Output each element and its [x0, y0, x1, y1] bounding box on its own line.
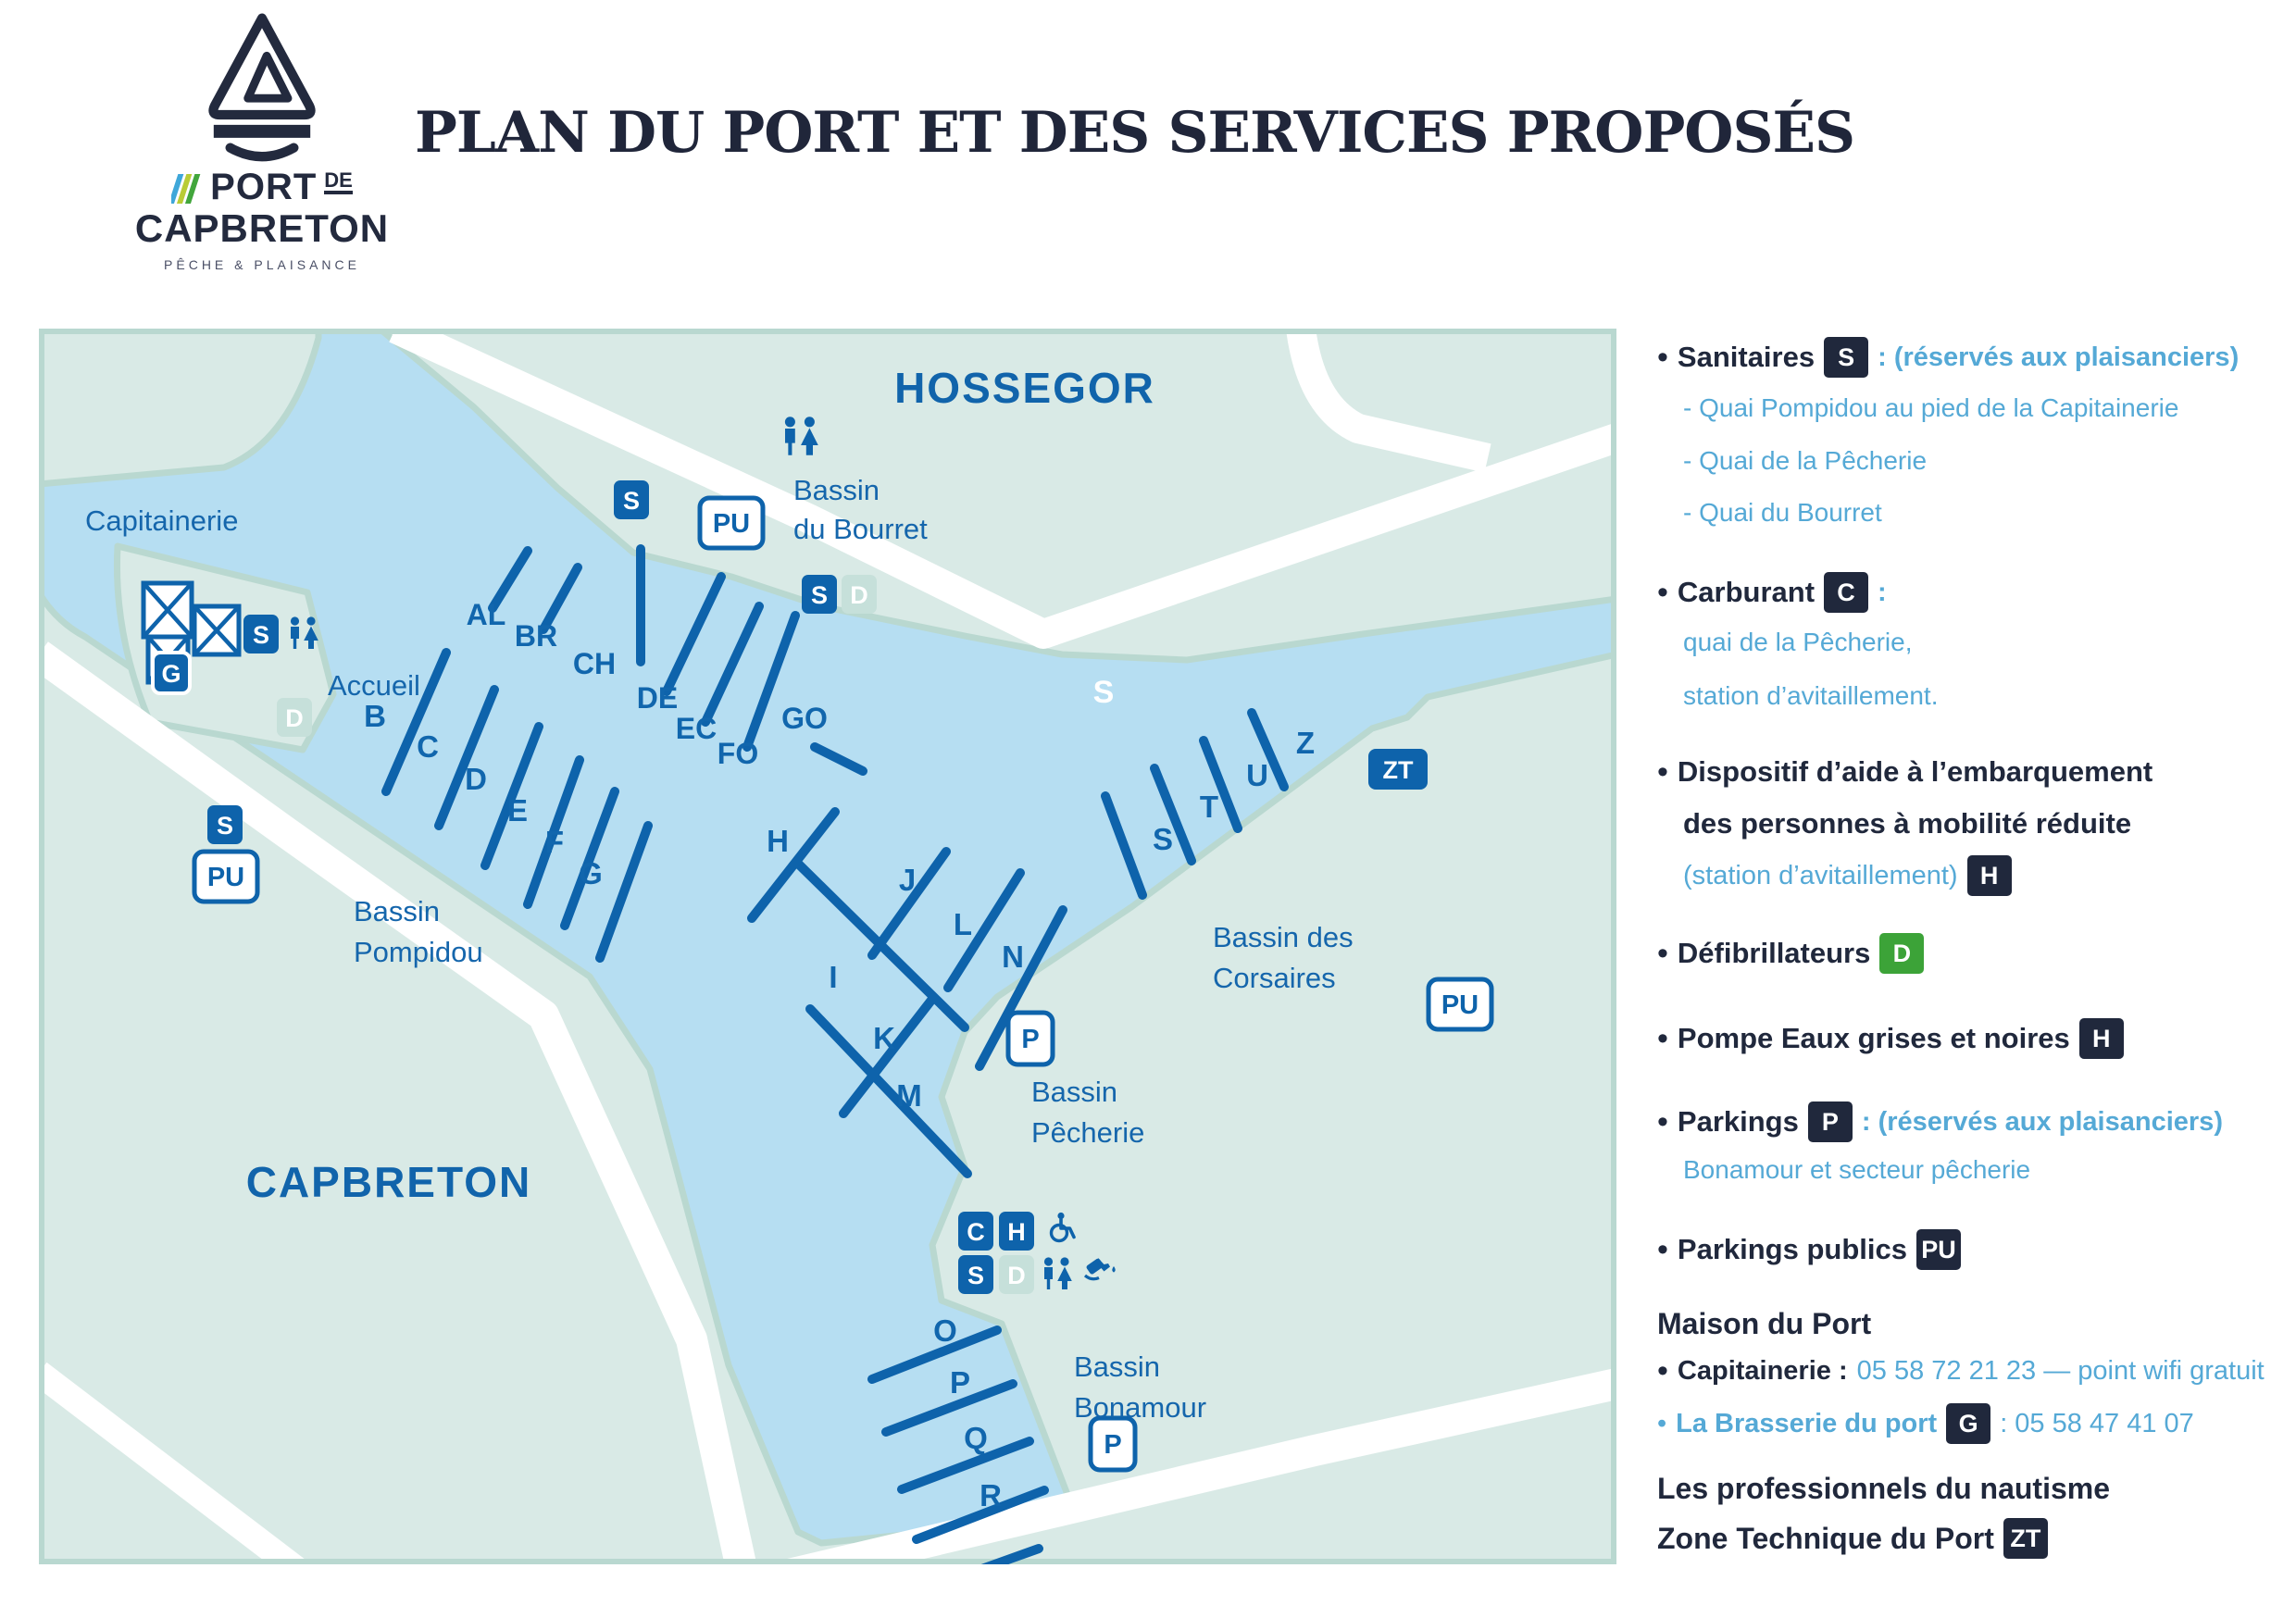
badge-s: S [1824, 337, 1868, 378]
brand-stripes-icon [171, 172, 203, 205]
legend-defib-label: Défibrillateurs [1678, 937, 1870, 970]
area-label-pompidou-2: Pompidou [354, 936, 483, 968]
pontoon-label-f: F [545, 825, 564, 859]
legend-carburant-suffix: : [1878, 578, 1887, 608]
badge-s-capitainerie: S [243, 615, 279, 653]
bullet: • [1657, 1023, 1668, 1054]
brasserie-label: La Brasserie du port [1676, 1409, 1937, 1439]
badge-d-pecherie: D [999, 1255, 1034, 1294]
bullet: • [1657, 938, 1668, 969]
legend-pmr-text-1: Dispositif d’aide à l’embarquement [1678, 755, 2152, 789]
area-label-bonamour-2: Bonamour [1074, 1391, 1206, 1424]
badge-g-brasserie: G [153, 653, 190, 693]
area-label-accueil: Accueil [328, 669, 420, 702]
legend-sanitaires-sub-1: - Quai Pompidou au pied de la Capitainer… [1683, 393, 2178, 423]
badge-s-bourret-top: S [614, 480, 649, 519]
map-canvas: S PU S D S G D S [39, 329, 1616, 1564]
maison-du-port-title: Maison du Port [1657, 1307, 1871, 1341]
port-map: S PU S D S G D S [39, 329, 1616, 1564]
poster-page: PORT DE CAPBRETON PÊCHE & PLAISANCE PLAN… [0, 0, 2296, 1618]
legend-sanitaires-suffix: : (réservés aux plaisanciers) [1878, 342, 2239, 373]
pontoon-label-i: I [829, 960, 837, 994]
badge-letter: P [1021, 1025, 1039, 1054]
badge-letter: D [1007, 1262, 1026, 1289]
badge-letter: D [285, 704, 304, 732]
legend-professionnels: Les professionnels du nautisme [1657, 1472, 2110, 1506]
badge-letter: PU [207, 863, 244, 892]
pontoon-label-q: Q [964, 1421, 988, 1455]
pontoon-label-p: P [950, 1365, 970, 1400]
badge-d-bourret-quay: D [842, 575, 877, 614]
pontoon-label-s: S [1153, 822, 1173, 856]
pontoon-label-h: H [767, 824, 789, 858]
badge-zt-zone-technique: ZT [1368, 749, 1428, 790]
bullet: • [1657, 1411, 1666, 1438]
drop-sail-icon [183, 11, 341, 167]
legend-parkings-label: Parkings [1678, 1105, 1799, 1139]
page-title: PLAN DU PORT ET DES SERVICES PROPOSÉS [415, 100, 1989, 166]
capitainerie-contact-label: Capitainerie : [1678, 1356, 1848, 1387]
city-label-capbreton: CAPBRETON [246, 1158, 532, 1206]
bullet: • [1657, 342, 1668, 373]
badge-letter: S [967, 1262, 984, 1289]
city-label-hossegor: HOSSEGOR [894, 364, 1155, 412]
legend-parkings-sub: Bonamour et secteur pêcherie [1683, 1155, 2030, 1185]
legend-pmr-line-3: (station d’avitaillement) H [1683, 855, 2021, 896]
badge-letter: PU [713, 509, 750, 539]
legend-sanitaires-sub-3: - Quai du Bourret [1683, 498, 1882, 528]
area-label-pecherie-2: Pêcherie [1031, 1116, 1144, 1149]
badge-h-pecherie: H [999, 1212, 1034, 1251]
bullet: • [1657, 577, 1668, 608]
legend-parkings-suffix: : (réservés aux plaisanciers) [1862, 1107, 2223, 1138]
pontoon-label-o: O [933, 1313, 957, 1348]
pontoon-label-ec: EC [676, 712, 717, 745]
pontoon-label-go: GO [781, 702, 828, 735]
area-label-bonamour-1: Bassin [1074, 1350, 1160, 1383]
badge-pu-pompidou: PU [194, 852, 257, 902]
pontoon-label-n: N [1002, 940, 1024, 974]
pontoon-label-m: M [896, 1078, 922, 1113]
pontoon-label-l: L [954, 907, 972, 941]
bullet: • [1657, 1106, 1668, 1138]
legend-capitainerie-contact: • Capitainerie : 05 58 72 21 23 — point … [1657, 1355, 2265, 1387]
pontoon-label-de: DE [637, 681, 678, 715]
legend-defibrillateurs: • Défibrillateurs D [1657, 933, 1933, 974]
badge-p-bonamour: P [1091, 1418, 1135, 1470]
pontoon-label-ch: CH [573, 647, 616, 680]
badge-pu-bourret: PU [700, 498, 763, 548]
pontoon-label-g: G [579, 856, 603, 890]
badge-letter: P [1104, 1430, 1121, 1460]
bullet: • [1657, 756, 1668, 788]
badge-letter: C [967, 1218, 985, 1246]
pontoon-label-r: R [980, 1478, 1002, 1512]
legend-pmr-text-2: des personnes à mobilité réduite [1683, 807, 2131, 840]
pontoon-label-fo: FO [717, 737, 758, 770]
pontoon-label-b: B [364, 699, 386, 733]
badge-s-bourret-quay: S [802, 575, 837, 614]
zone-technique-label: Zone Technique du Port [1657, 1522, 1994, 1556]
badge-letter: S [811, 581, 828, 609]
brand-port: PORT [210, 168, 317, 205]
area-label-pecherie-1: Bassin [1031, 1076, 1117, 1108]
bullet: • [1657, 1355, 1668, 1387]
badge-letter: S [623, 487, 640, 515]
badge-letter: H [1007, 1218, 1026, 1246]
badge-h: H [1967, 855, 2012, 896]
legend-carburant-label: Carburant [1678, 576, 1815, 609]
badge-h: H [2079, 1018, 2124, 1059]
legend-pmr-text-3: (station d’avitaillement) [1683, 861, 1958, 891]
legend-sanitaires-sub-2: - Quai de la Pêcherie [1683, 446, 1927, 476]
brand-capbreton: CAPBRETON [119, 209, 406, 248]
badge-p: P [1808, 1101, 1853, 1142]
legend-carburant-sub-1: quai de la Pêcherie, [1683, 628, 1913, 657]
pontoon-label-z: Z [1296, 726, 1315, 760]
pontoon-label-e: E [507, 793, 528, 828]
pontoon-label-c: C [417, 729, 439, 764]
pontoon-label-al: AL [467, 598, 506, 631]
badge-letter: S [253, 621, 269, 649]
badge-pu-corsaires: PU [1429, 979, 1491, 1029]
badge-letter: PU [1441, 990, 1479, 1020]
pontoon-label-t: T [1200, 790, 1218, 824]
legend-sanitaires-label: Sanitaires [1678, 341, 1815, 374]
area-label-capitainerie: Capitainerie [85, 504, 238, 537]
legend-pompe: • Pompe Eaux grises et noires H [1657, 1018, 2133, 1059]
badge-p-pecherie: P [1008, 1013, 1053, 1064]
legend-maison-du-port: Maison du Port [1657, 1307, 1871, 1341]
badge-letter: S [217, 812, 233, 840]
brand-line: PORT DE [119, 168, 406, 205]
legend-pmr-line-2: des personnes à mobilité réduite [1683, 807, 2131, 840]
legend-brasserie-contact: • La Brasserie du port G : 05 58 47 41 0… [1657, 1403, 2194, 1444]
pontoon-label-d: D [465, 762, 487, 796]
badge-pu: PU [1916, 1229, 1961, 1270]
pontoon-label-j: J [899, 863, 916, 897]
badge-letter: G [161, 660, 181, 688]
badge-c: C [1824, 572, 1868, 613]
brasserie-value: : 05 58 47 41 07 [2000, 1409, 2194, 1439]
legend-parkings-publics-label: Parkings publics [1678, 1233, 1907, 1266]
legend-parkings: • Parkings P : (réservés aux plaisancier… [1657, 1101, 2223, 1142]
brand-de: DE [324, 170, 353, 194]
badge-s-pecherie: S [958, 1255, 993, 1294]
badge-zt: ZT [2003, 1518, 2048, 1559]
badge-s-pompidou: S [207, 805, 243, 844]
legend-parkings-publics: • Parkings publics PU [1657, 1229, 1970, 1270]
area-label-corsaires-2: Corsaires [1213, 962, 1336, 994]
bullet: • [1657, 1234, 1668, 1265]
logo-drop-icon [119, 11, 406, 167]
badge-d-accueil: D [277, 698, 312, 737]
pontoon-label-br: BR [515, 619, 557, 653]
brand-tagline: PÊCHE & PLAISANCE [119, 257, 406, 272]
area-label-bourret-2: du Bourret [793, 513, 928, 545]
capitainerie-contact-value: 05 58 72 21 23 — point wifi gratuit [1857, 1356, 2265, 1387]
area-label-pompidou-1: Bassin [354, 895, 440, 927]
badge-g: G [1946, 1403, 1990, 1444]
legend-zone-technique: Zone Technique du Port ZT [1657, 1518, 2057, 1559]
channel-marker-s: S [1093, 675, 1115, 710]
badge-d-green: D [1879, 933, 1924, 974]
professionnels-label: Les professionnels du nautisme [1657, 1472, 2110, 1506]
pontoon-label-k: K [873, 1021, 895, 1055]
area-label-corsaires-1: Bassin des [1213, 921, 1354, 953]
legend-carburant-sub-2: station d’avitaillement. [1683, 681, 1938, 711]
badge-letter: ZT [1383, 756, 1414, 784]
area-label-bourret-1: Bassin [793, 474, 880, 506]
pontoon-label-u: U [1246, 758, 1268, 792]
legend-sanitaires: • Sanitaires S : (réservés aux plaisanci… [1657, 337, 2239, 378]
legend-pmr-line-1: • Dispositif d’aide à l’embarquement [1657, 755, 2152, 789]
legend-pompe-label: Pompe Eaux grises et noires [1678, 1022, 2070, 1055]
badge-c-pecherie: C [958, 1212, 993, 1251]
legend-carburant: • Carburant C : [1657, 572, 1887, 613]
badge-letter: D [850, 581, 868, 609]
port-logo: PORT DE CAPBRETON PÊCHE & PLAISANCE [119, 11, 406, 272]
